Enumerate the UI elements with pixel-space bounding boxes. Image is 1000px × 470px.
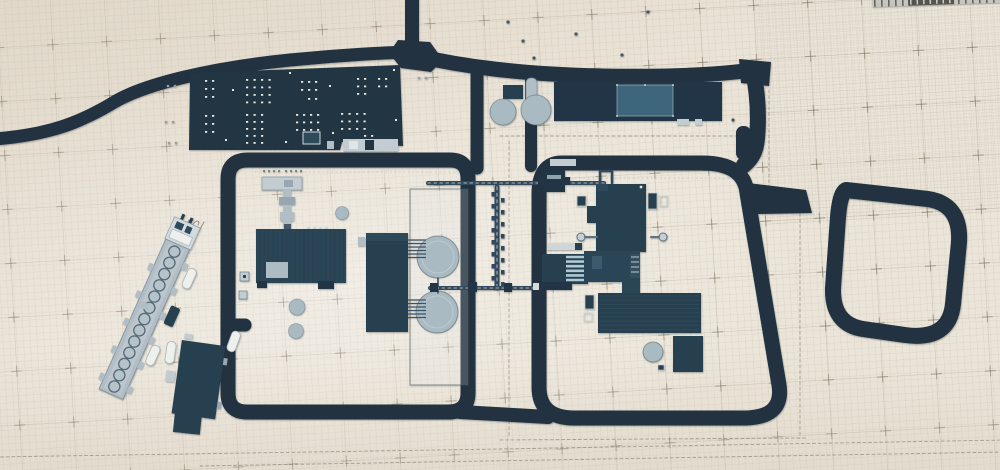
gate-pad [550, 159, 576, 166]
building-stub-2 [318, 281, 334, 289]
scene-layers [0, 0, 1000, 470]
edge-bar [539, 282, 572, 290]
roof-grey-panel [266, 262, 288, 278]
storage-tank-small-1 [490, 99, 516, 125]
pipe-block-1 [430, 283, 438, 292]
canopy-divider [365, 140, 374, 150]
car-park [189, 65, 403, 151]
containment-tank-2 [416, 291, 458, 333]
side-pad-w2 [587, 206, 596, 223]
tall-auxiliary-building [366, 233, 408, 332]
bottom-connector-road [460, 412, 548, 417]
turbine-inner-bay [592, 256, 602, 269]
small-tank-2 [289, 299, 305, 315]
small-tank-1 [336, 207, 349, 220]
light-post-west [577, 233, 585, 241]
tank-kiosk [658, 365, 664, 370]
small-store-building [173, 412, 202, 435]
light-post-east [659, 233, 667, 241]
pipe-block-2 [468, 282, 477, 292]
loading-pad-2 [695, 119, 702, 125]
gantry-collar-1 [279, 197, 295, 205]
side-pad-e1 [648, 193, 657, 209]
crane-tab-left [538, 176, 543, 185]
hall-connector [622, 282, 640, 294]
tall-building-top [366, 233, 408, 241]
small-tank-3 [289, 324, 304, 339]
storage-tank-small-2 [521, 95, 551, 125]
reactor-service-building [596, 184, 646, 252]
edge-bar-cap [533, 283, 539, 290]
vehicle-bay [547, 243, 576, 250]
gantry-head [262, 177, 302, 190]
side-pad-w1 [577, 196, 586, 206]
pump-house [503, 85, 523, 99]
service-building-notch [596, 184, 608, 191]
utility-box-1-core [243, 275, 246, 278]
site-plan-canvas [0, 0, 1000, 470]
building-stub-1 [257, 281, 267, 288]
pipe-block-3 [504, 283, 512, 292]
loading-pad-1 [677, 119, 689, 125]
generator-annex [673, 336, 703, 372]
crane-tab-right [565, 177, 570, 185]
canopy-chip [349, 141, 358, 149]
crane-bar [547, 175, 561, 179]
parking-lot [189, 65, 403, 150]
generator-pad-1 [585, 295, 594, 309]
road-layby [736, 126, 751, 160]
gantry-stem [283, 190, 291, 228]
lot-building [303, 132, 320, 144]
service-roof-dot [640, 186, 643, 189]
aerial-site-model [0, 0, 1000, 470]
warehouse-teal-roof [617, 85, 673, 116]
utility-box-2 [239, 291, 247, 299]
lot-shed [327, 141, 334, 149]
water-tank-east [643, 342, 663, 362]
gantry-collar-2 [280, 212, 294, 221]
vehicle-bay-block [575, 243, 582, 250]
tall-building-pad [358, 237, 365, 246]
workshop-annex [165, 370, 175, 382]
pipe-crane-block [543, 170, 565, 192]
gantry-head-detail [284, 180, 293, 187]
